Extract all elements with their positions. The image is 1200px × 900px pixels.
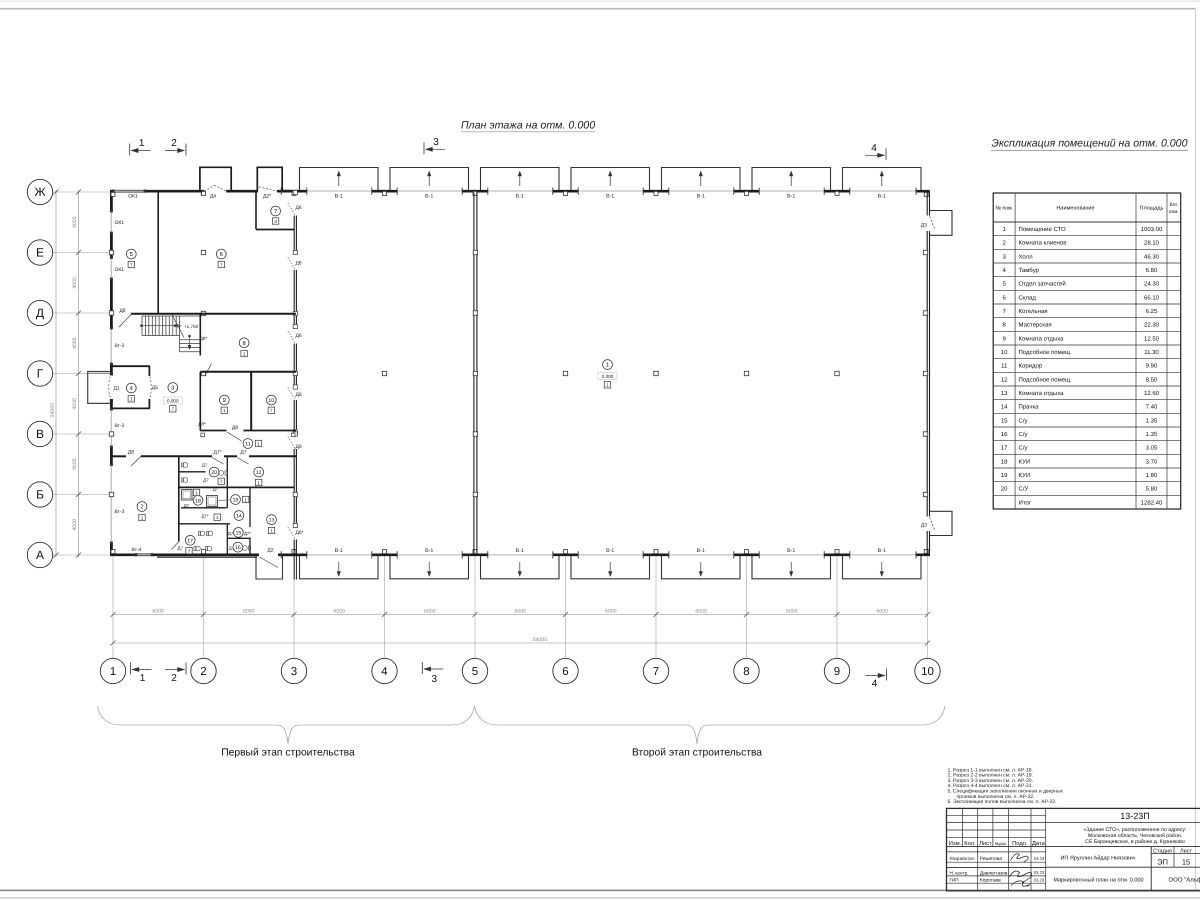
svg-text:ГИП: ГИП	[950, 878, 959, 883]
svg-text:2: 2	[140, 504, 143, 511]
svg-text:3: 3	[291, 666, 297, 678]
svg-text:1: 1	[141, 515, 144, 520]
svg-text:6000: 6000	[786, 608, 798, 614]
svg-text:7: 7	[220, 262, 223, 267]
svg-text:3: 3	[171, 385, 174, 392]
svg-text:7: 7	[130, 262, 133, 267]
svg-text:5: 5	[1003, 281, 1007, 288]
svg-text:3: 3	[433, 137, 439, 148]
svg-text:Второй этап строительства: Второй этап строительства	[632, 748, 762, 759]
svg-text:12.50: 12.50	[1144, 335, 1160, 342]
svg-text:1: 1	[216, 515, 219, 520]
svg-text:Котельная: Котельная	[1019, 308, 1048, 315]
svg-text:1282.40: 1282.40	[1141, 499, 1163, 506]
svg-text:5: 5	[130, 252, 133, 258]
svg-text:Н. контр.: Н. контр.	[950, 871, 969, 876]
svg-text:7: 7	[1003, 308, 1007, 315]
svg-text:ОК1: ОК1	[115, 267, 125, 273]
svg-text:18: 18	[195, 498, 201, 504]
svg-text:Д6: Д6	[296, 444, 302, 450]
svg-text:пом.: пом.	[1169, 210, 1179, 215]
svg-text:В-1: В-1	[878, 194, 886, 200]
svg-text:03.23: 03.23	[1034, 878, 1045, 883]
svg-text:Д8*: Д8*	[200, 336, 208, 341]
svg-text:1: 1	[223, 408, 226, 413]
svg-text:8: 8	[743, 666, 749, 678]
svg-text:В-1: В-1	[335, 194, 343, 200]
svg-text:6. Экспликация полов выполнена: 6. Экспликация полов выполнена см. л. АР…	[948, 799, 1057, 805]
svg-text:4000: 4000	[72, 216, 78, 228]
svg-text:+1.760: +1.760	[184, 324, 199, 329]
svg-text:ОК1: ОК1	[128, 193, 138, 199]
svg-text:Д5: Д5	[152, 385, 158, 391]
svg-text:Решетова: Решетова	[980, 856, 1002, 862]
svg-text:7: 7	[270, 408, 273, 413]
svg-text:Д6: Д6	[296, 333, 302, 339]
svg-text:7.40: 7.40	[1146, 404, 1158, 411]
svg-text:9: 9	[223, 397, 226, 404]
svg-text:Помещение СТО: Помещение СТО	[1019, 226, 1067, 233]
svg-text:3: 3	[432, 674, 438, 685]
svg-text:Вт-2: Вт-2	[115, 423, 125, 429]
svg-text:В: В	[36, 427, 44, 441]
svg-text:24000: 24000	[50, 403, 56, 418]
svg-text:6: 6	[1003, 294, 1007, 301]
svg-text:ООО "Альфа: ООО "Альфа	[1169, 877, 1200, 884]
svg-text:12: 12	[1001, 376, 1008, 383]
svg-text:20: 20	[1001, 486, 1008, 493]
svg-text:Тамбур: Тамбур	[1019, 267, 1040, 274]
svg-text:Наименование: Наименование	[1056, 206, 1094, 212]
svg-text:Д6*: Д6*	[296, 530, 304, 536]
svg-text:17: 17	[1001, 445, 1008, 452]
svg-text:Изм.: Изм.	[949, 841, 962, 847]
svg-text:6000: 6000	[514, 608, 526, 614]
svg-text:В-1: В-1	[516, 548, 524, 554]
svg-text:6000: 6000	[695, 608, 707, 614]
svg-text:Б: Б	[36, 488, 44, 502]
svg-text:Прачка: Прачка	[1019, 404, 1040, 411]
svg-text:9: 9	[834, 666, 840, 678]
svg-text:Д8: Д8	[128, 450, 134, 456]
svg-text:№док.: №док.	[995, 841, 1007, 846]
svg-text:С/у: С/у	[1019, 431, 1028, 438]
svg-text:1: 1	[243, 351, 246, 356]
svg-text:17: 17	[187, 538, 193, 544]
svg-text:11: 11	[1001, 363, 1008, 370]
svg-text:Комната отдыха: Комната отдыха	[1019, 335, 1065, 342]
svg-text:18: 18	[1001, 458, 1008, 465]
svg-text:Разработал: Разработал	[950, 856, 975, 861]
svg-text:В-1: В-1	[335, 548, 343, 554]
svg-text:16: 16	[235, 545, 241, 551]
svg-text:0.000: 0.000	[167, 398, 179, 403]
svg-text:Подп.: Подп.	[1012, 841, 1028, 847]
svg-text:1: 1	[139, 138, 145, 149]
svg-text:В-1: В-1	[787, 194, 795, 200]
svg-text:КУИ: КУИ	[1019, 458, 1031, 465]
svg-text:КУИ: КУИ	[1019, 472, 1031, 479]
svg-text:6000: 6000	[876, 608, 888, 614]
svg-text:Кол.: Кол.	[964, 841, 976, 847]
svg-text:13-23П: 13-23П	[1120, 811, 1150, 821]
svg-text:1.35: 1.35	[1146, 417, 1158, 424]
svg-text:Склад: Склад	[1019, 294, 1037, 301]
svg-text:0.000: 0.000	[602, 374, 614, 379]
svg-text:Д2: Д2	[267, 547, 273, 553]
svg-text:10: 10	[921, 666, 934, 678]
svg-text:Д6: Д6	[296, 392, 302, 398]
svg-text:6000: 6000	[605, 608, 617, 614]
svg-text:Д7: Д7	[213, 487, 219, 492]
svg-text:Маркировочный план на отм. 0.0: Маркировочный план на отм. 0.000	[1053, 877, 1143, 884]
svg-text:3.05: 3.05	[1146, 445, 1158, 452]
svg-text:Площадь: Площадь	[1140, 206, 1164, 212]
svg-text:№ пом.: № пом.	[995, 206, 1013, 212]
svg-text:Д8*: Д8*	[198, 422, 206, 427]
svg-text:1.35: 1.35	[1146, 431, 1158, 438]
svg-text:В-1: В-1	[606, 548, 614, 554]
svg-text:7: 7	[172, 407, 175, 412]
svg-text:4: 4	[871, 143, 877, 154]
svg-text:11.30: 11.30	[1144, 349, 1159, 356]
svg-text:20: 20	[211, 470, 217, 476]
svg-text:Холл: Холл	[1019, 253, 1034, 260]
svg-text:Д6: Д6	[296, 205, 302, 211]
svg-text:8.50: 8.50	[1146, 376, 1158, 383]
svg-text:1: 1	[244, 497, 247, 502]
svg-text:Комната клиенов: Комната клиенов	[1019, 240, 1067, 247]
svg-text:Д6: Д6	[296, 261, 302, 267]
svg-text:03.23: 03.23	[1034, 856, 1045, 861]
svg-text:Ж: Ж	[34, 185, 45, 199]
svg-text:19: 19	[1001, 472, 1008, 479]
svg-text:22.30: 22.30	[1144, 322, 1160, 329]
svg-text:Итог: Итог	[1019, 499, 1032, 506]
svg-text:1: 1	[1003, 226, 1007, 233]
svg-text:6000: 6000	[333, 608, 345, 614]
svg-text:Отдел запчастей: Отдел запчастей	[1019, 281, 1066, 288]
svg-text:66.10: 66.10	[1144, 294, 1160, 301]
svg-text:4000: 4000	[72, 519, 78, 531]
svg-text:Давлетгазов: Давлетгазов	[980, 871, 1008, 877]
svg-text:6.25: 6.25	[1146, 308, 1158, 315]
svg-text:7: 7	[188, 549, 191, 554]
svg-text:В-1: В-1	[878, 548, 886, 554]
svg-text:54000: 54000	[533, 637, 548, 643]
svg-text:7: 7	[220, 479, 223, 484]
svg-text:1: 1	[257, 480, 260, 485]
svg-text:Комната отдыха: Комната отдыха	[1019, 390, 1065, 397]
svg-text:2: 2	[171, 673, 177, 684]
svg-text:14: 14	[236, 514, 242, 520]
svg-text:Вт-4: Вт-4	[132, 547, 142, 553]
svg-text:Мастерская: Мастерская	[1019, 322, 1052, 329]
svg-text:03.23: 03.23	[1034, 870, 1045, 875]
svg-text:3: 3	[1003, 253, 1007, 260]
svg-text:14: 14	[1001, 404, 1008, 411]
svg-text:Стадия: Стадия	[1153, 848, 1172, 854]
svg-text:Коротаев: Коротаев	[980, 878, 1001, 884]
svg-text:9.90: 9.90	[1146, 363, 1158, 370]
svg-text:Вт-2: Вт-2	[115, 343, 125, 349]
svg-text:15: 15	[1001, 417, 1008, 424]
svg-text:2: 2	[200, 666, 206, 678]
svg-text:Коридор: Коридор	[1019, 363, 1043, 370]
svg-text:4: 4	[1003, 267, 1007, 274]
svg-text:СБ Баранцевское, в районе д. К: СБ Баранцевское, в районе д. Курниково	[1085, 839, 1185, 845]
svg-text:Д7*: Д7*	[213, 449, 221, 455]
svg-text:46.30: 46.30	[1144, 253, 1160, 260]
svg-text:28.10: 28.10	[1144, 240, 1160, 247]
svg-text:11: 11	[245, 442, 250, 448]
svg-text:Е: Е	[36, 246, 44, 260]
svg-text:6000: 6000	[243, 608, 255, 614]
svg-text:Д8: Д8	[119, 308, 125, 314]
svg-text:Д7: Д7	[203, 478, 209, 483]
svg-text:1: 1	[110, 666, 116, 678]
svg-text:С/у: С/у	[1019, 445, 1028, 452]
svg-text:Д: Д	[36, 306, 44, 320]
svg-text:10: 10	[1001, 349, 1008, 356]
svg-text:Д7: Д7	[202, 463, 208, 468]
svg-text:24.30: 24.30	[1144, 281, 1160, 288]
svg-text:Первый этап строительства: Первый этап строительства	[221, 748, 355, 759]
svg-text:В-1: В-1	[425, 194, 433, 200]
svg-text:Г: Г	[37, 367, 44, 381]
svg-text:1: 1	[270, 528, 273, 533]
svg-text:Д7*: Д7*	[244, 531, 251, 536]
svg-text:6000: 6000	[424, 608, 436, 614]
svg-text:В-1: В-1	[697, 194, 705, 200]
svg-text:1: 1	[606, 363, 609, 369]
svg-text:5: 5	[472, 666, 478, 678]
svg-text:4000: 4000	[72, 398, 78, 410]
svg-text:Д7: Д7	[240, 449, 246, 455]
svg-text:Вт-3: Вт-3	[115, 509, 125, 515]
svg-text:6000: 6000	[152, 608, 164, 614]
svg-text:Д4: Д4	[210, 193, 216, 199]
svg-text:6.80: 6.80	[1146, 267, 1158, 274]
svg-text:ОК1: ОК1	[115, 220, 125, 226]
svg-text:Лист: Лист	[1180, 848, 1192, 854]
svg-text:8: 8	[242, 340, 245, 347]
svg-text:Д7*: Д7*	[201, 514, 208, 519]
svg-text:2: 2	[171, 138, 177, 149]
svg-text:В-1: В-1	[606, 194, 614, 200]
svg-text:7: 7	[274, 209, 277, 215]
svg-text:Подсобное помещ.: Подсобное помещ.	[1019, 349, 1072, 356]
svg-text:15: 15	[1182, 858, 1190, 867]
svg-text:Д7: Д7	[184, 503, 190, 508]
svg-text:Дата: Дата	[1032, 841, 1046, 847]
svg-text:Д7: Д7	[228, 531, 234, 536]
svg-text:6: 6	[562, 666, 568, 678]
svg-text:ИП Яруллин Айдар Ниязович: ИП Яруллин Айдар Ниязович	[1060, 855, 1135, 862]
svg-text:Лист: Лист	[979, 841, 992, 847]
svg-text:19: 19	[233, 498, 239, 504]
svg-text:16: 16	[1001, 431, 1008, 438]
svg-text:С/У: С/У	[1019, 486, 1029, 493]
svg-text:Д7: Д7	[177, 546, 183, 551]
svg-text:С/у: С/у	[1019, 417, 1028, 424]
svg-text:Д8: Д8	[232, 425, 238, 431]
svg-text:7: 7	[653, 666, 659, 678]
svg-text:15: 15	[236, 530, 242, 536]
svg-text:1: 1	[606, 383, 609, 388]
svg-text:Подсобное помещ.: Подсобное помещ.	[1019, 376, 1072, 383]
svg-text:В-1: В-1	[425, 548, 433, 554]
svg-text:Кат.: Кат.	[1170, 202, 1178, 208]
svg-text:1003.00: 1003.00	[1141, 226, 1163, 233]
svg-text:В-1: В-1	[516, 194, 524, 200]
svg-text:4000: 4000	[72, 458, 78, 470]
svg-text:Д3: Д3	[921, 223, 927, 229]
svg-text:В-1: В-1	[697, 548, 705, 554]
svg-text:13: 13	[269, 518, 275, 524]
svg-text:4000: 4000	[72, 337, 78, 349]
svg-text:10: 10	[268, 398, 274, 404]
svg-text:9: 9	[1003, 335, 1007, 342]
svg-text:4000: 4000	[72, 277, 78, 289]
svg-text:В-1: В-1	[787, 548, 795, 554]
svg-text:1: 1	[140, 673, 146, 684]
svg-text:1.80: 1.80	[1146, 472, 1158, 479]
svg-text:5.80: 5.80	[1146, 486, 1158, 493]
svg-text:8: 8	[1003, 322, 1007, 329]
svg-text:1: 1	[257, 441, 260, 446]
svg-text:Экспликация помещений на отм.: Экспликация помещений на отм. 0.000	[992, 138, 1188, 150]
svg-text:12: 12	[256, 470, 262, 476]
svg-text:6: 6	[220, 251, 223, 258]
svg-text:4: 4	[381, 666, 388, 678]
svg-text:3: 3	[274, 219, 277, 224]
svg-text:Д2*: Д2*	[263, 193, 271, 199]
svg-text:1: 1	[195, 490, 198, 495]
svg-text:1: 1	[130, 397, 133, 402]
svg-text:12.60: 12.60	[1144, 390, 1160, 397]
svg-text:Д3: Д3	[921, 522, 927, 528]
svg-text:3.70: 3.70	[1146, 458, 1158, 465]
svg-text:13: 13	[1001, 390, 1008, 397]
svg-text:План этажа на отм. 0.000: План этажа на отм. 0.000	[461, 120, 595, 132]
svg-text:А: А	[36, 548, 44, 562]
svg-text:2: 2	[1003, 240, 1007, 247]
svg-text:Д1: Д1	[114, 386, 120, 392]
svg-text:4: 4	[872, 679, 878, 690]
svg-text:ЭП: ЭП	[1157, 858, 1168, 867]
